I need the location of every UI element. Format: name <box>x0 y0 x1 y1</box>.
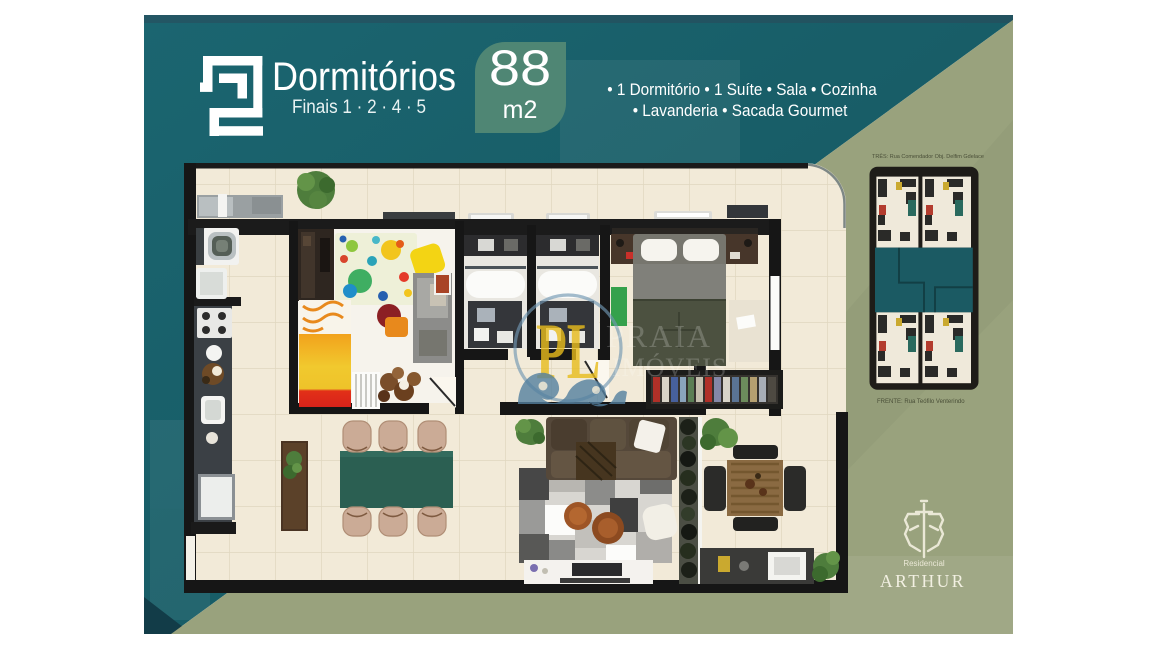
svg-text:FRENTE: Rua Teófilo Venterindo: FRENTE: Rua Teófilo Venterindo <box>877 399 965 405</box>
svg-text:PRAIA: PRAIA <box>606 318 712 354</box>
svg-text:m2: m2 <box>503 96 538 124</box>
svg-text:ARTHUR: ARTHUR <box>880 571 966 591</box>
svg-text:Residencial: Residencial <box>903 559 945 568</box>
svg-text:Dormitórios: Dormitórios <box>272 55 456 99</box>
svg-text:• Lavanderia • Sacada Gourmet: • Lavanderia • Sacada Gourmet <box>633 101 848 120</box>
svg-text:TRÊS: Rua Comendador Obj. Delf: TRÊS: Rua Comendador Obj. Delfim Gdelace <box>872 152 984 160</box>
svg-text:• 1 Dormitório • 1 Suíte • Sal: • 1 Dormitório • 1 Suíte • Sala • Cozinh… <box>607 80 876 99</box>
svg-text:Finais 1 · 2 · 4 · 5: Finais 1 · 2 · 4 · 5 <box>292 96 426 117</box>
svg-text:IMÓVEIS: IMÓVEIS <box>612 353 727 382</box>
svg-text:88: 88 <box>489 41 551 97</box>
